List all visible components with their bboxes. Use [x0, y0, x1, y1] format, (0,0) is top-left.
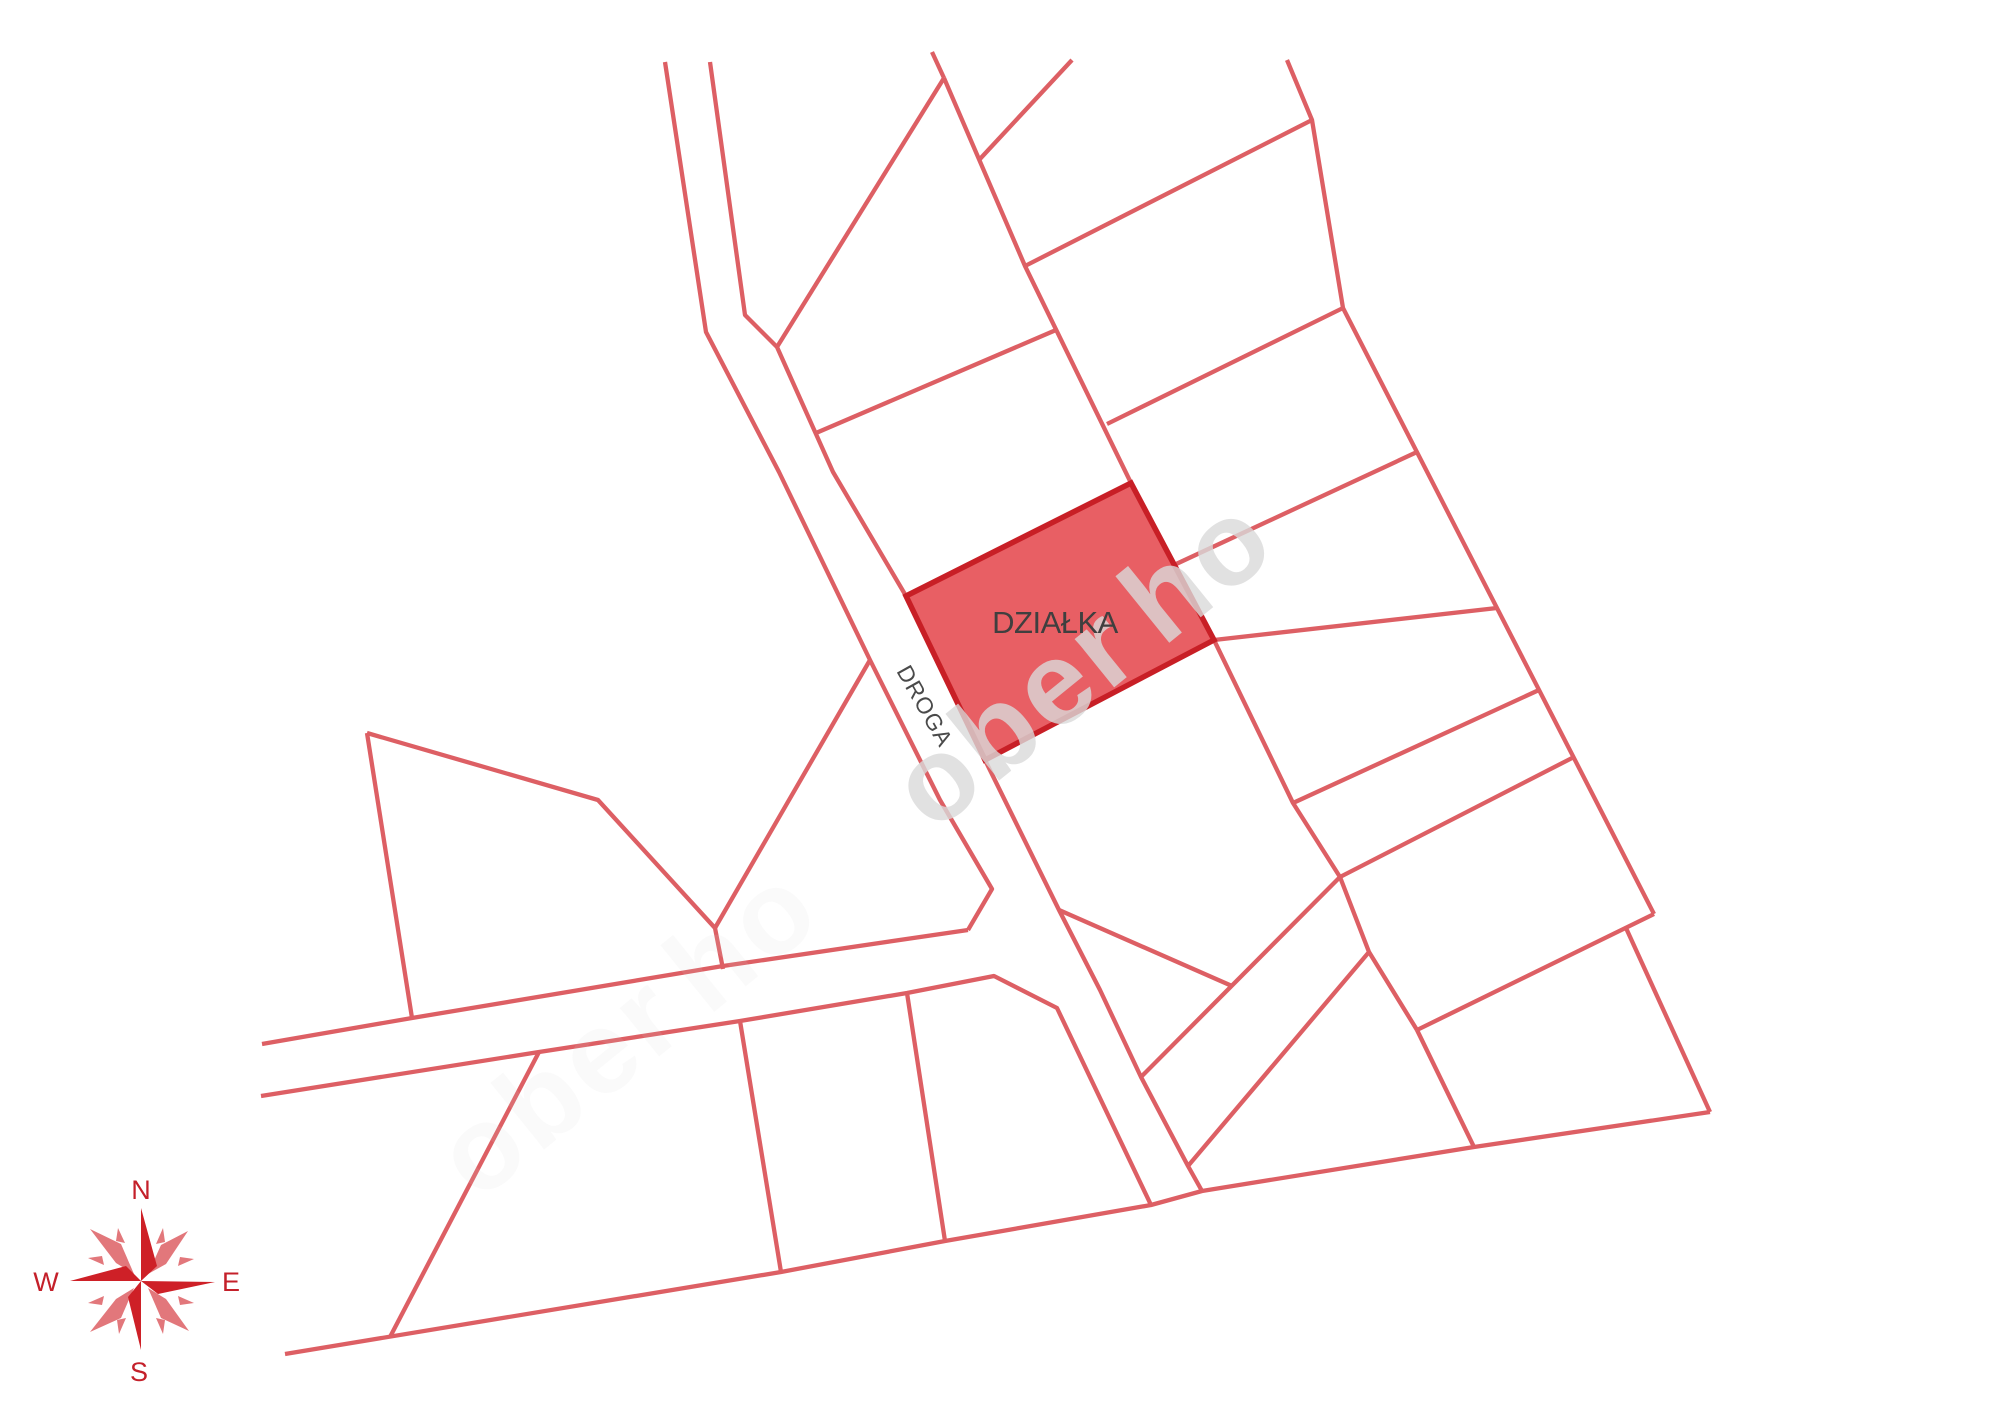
svg-text:oberho: oberho [411, 837, 844, 1223]
svg-text:E: E [222, 1267, 240, 1297]
svg-text:DZIAŁKA: DZIAŁKA [992, 605, 1119, 640]
svg-text:S: S [130, 1357, 148, 1387]
svg-text:W: W [33, 1267, 59, 1297]
svg-text:N: N [131, 1175, 151, 1205]
